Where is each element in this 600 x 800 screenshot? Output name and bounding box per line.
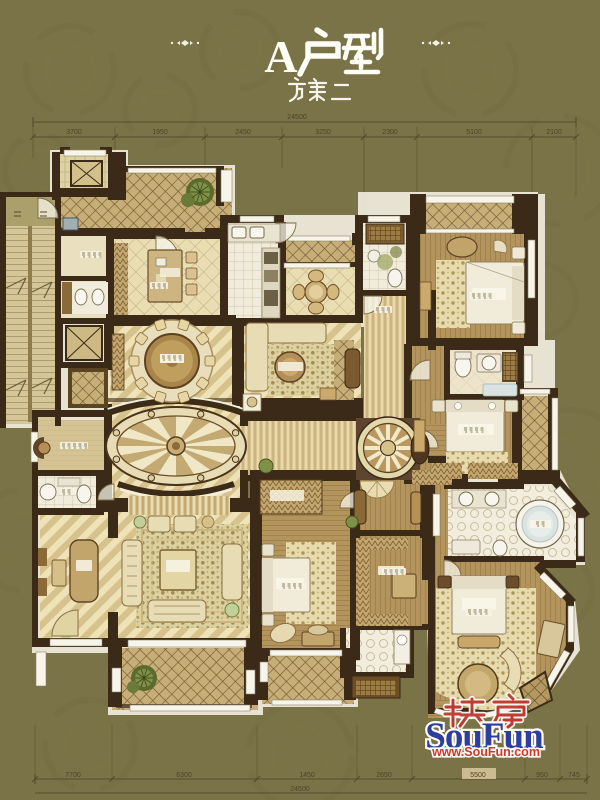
svg-text:6300: 6300 bbox=[176, 772, 192, 779]
svg-text:1450: 1450 bbox=[299, 772, 315, 779]
svg-text:24500: 24500 bbox=[290, 786, 310, 793]
svg-text:1950: 1950 bbox=[152, 129, 168, 136]
svg-text:2650: 2650 bbox=[376, 772, 392, 779]
svg-text:2100: 2100 bbox=[546, 129, 562, 136]
svg-text:3700: 3700 bbox=[66, 129, 82, 136]
svg-text:24500: 24500 bbox=[287, 114, 307, 121]
svg-text:2450: 2450 bbox=[235, 129, 251, 136]
svg-text:2300: 2300 bbox=[382, 129, 398, 136]
svg-text:3250: 3250 bbox=[315, 129, 331, 136]
svg-text:5100: 5100 bbox=[466, 129, 482, 136]
svg-text:A: A bbox=[264, 31, 297, 82]
svg-text:www.SouFun.com: www.SouFun.com bbox=[431, 745, 540, 759]
svg-text:7700: 7700 bbox=[65, 772, 81, 779]
svg-text:745: 745 bbox=[568, 772, 580, 779]
svg-text:5500: 5500 bbox=[470, 772, 486, 779]
svg-text:950: 950 bbox=[536, 772, 548, 779]
